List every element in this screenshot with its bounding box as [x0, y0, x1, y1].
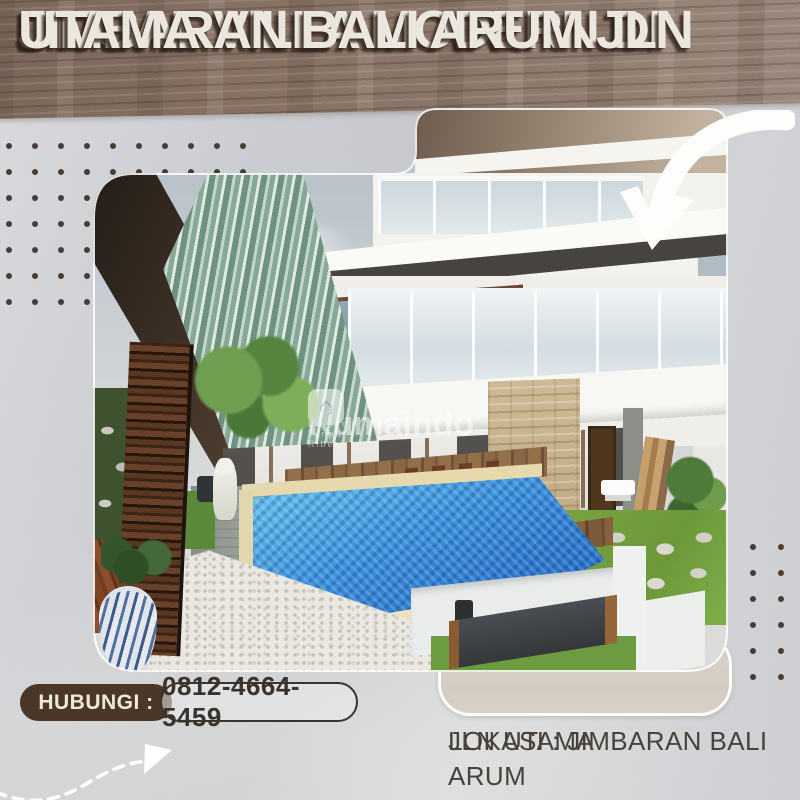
decorative-dot — [750, 674, 756, 680]
decorative-dot — [58, 273, 64, 279]
decorative-dot — [58, 221, 64, 227]
decorative-dot — [778, 596, 784, 602]
decorative-dot — [778, 648, 784, 654]
real-estate-flyer: ⌂ Rumaindo Cari Properti Tanpa Ribet DIJ… — [0, 0, 800, 800]
decorative-dot — [750, 544, 756, 550]
decorative-dot — [32, 143, 38, 149]
decorative-dot — [84, 169, 90, 175]
decorative-dot — [188, 143, 194, 149]
decorative-dot — [84, 299, 90, 305]
decorative-dot — [750, 596, 756, 602]
decorative-dot — [84, 273, 90, 279]
decorative-dot — [84, 195, 90, 201]
decorative-dot — [32, 273, 38, 279]
decorative-dot — [162, 143, 168, 149]
decorative-dot — [778, 570, 784, 576]
curved-arrow-icon — [590, 110, 795, 255]
location-line-2: JLN UTAMA — [448, 724, 594, 759]
decorative-dot — [778, 622, 784, 628]
decorative-dot — [750, 570, 756, 576]
decorative-dot — [84, 143, 90, 149]
contact-label: HUBUNGI : — [38, 691, 153, 715]
decorative-dot — [32, 247, 38, 253]
decorative-dot — [58, 143, 64, 149]
decorative-dot — [84, 247, 90, 253]
decorative-dot — [6, 247, 12, 253]
phone-button[interactable]: 0812-4664-5459 — [160, 682, 358, 722]
contact-button[interactable]: HUBUNGI : — [20, 684, 172, 721]
decorative-dot — [6, 195, 12, 201]
decorative-dot — [58, 169, 64, 175]
decorative-dot — [32, 299, 38, 305]
decorative-dot — [750, 622, 756, 628]
decorative-dot — [136, 143, 142, 149]
decorative-dot — [110, 143, 116, 149]
decorative-dot — [778, 674, 784, 680]
decorative-dot — [32, 169, 38, 175]
decorative-dot — [6, 273, 12, 279]
decorative-dot — [32, 195, 38, 201]
decorative-dot — [58, 247, 64, 253]
decorative-dot — [110, 169, 116, 175]
decorative-dot — [750, 648, 756, 654]
decorative-dot — [58, 299, 64, 305]
headline-line-3: UTAMA — [18, 6, 199, 55]
decorative-dot — [6, 143, 12, 149]
decorative-dot — [84, 221, 90, 227]
decorative-dot — [240, 143, 246, 149]
phone-number: 0812-4664-5459 — [162, 671, 356, 733]
decorative-dot — [214, 143, 220, 149]
decorative-dot — [58, 195, 64, 201]
decorative-dot — [6, 221, 12, 227]
decorative-dot — [6, 299, 12, 305]
decorative-dot — [32, 221, 38, 227]
decorative-dot — [6, 169, 12, 175]
decorative-dot — [778, 544, 784, 550]
dashed-arrow-icon — [0, 742, 189, 800]
